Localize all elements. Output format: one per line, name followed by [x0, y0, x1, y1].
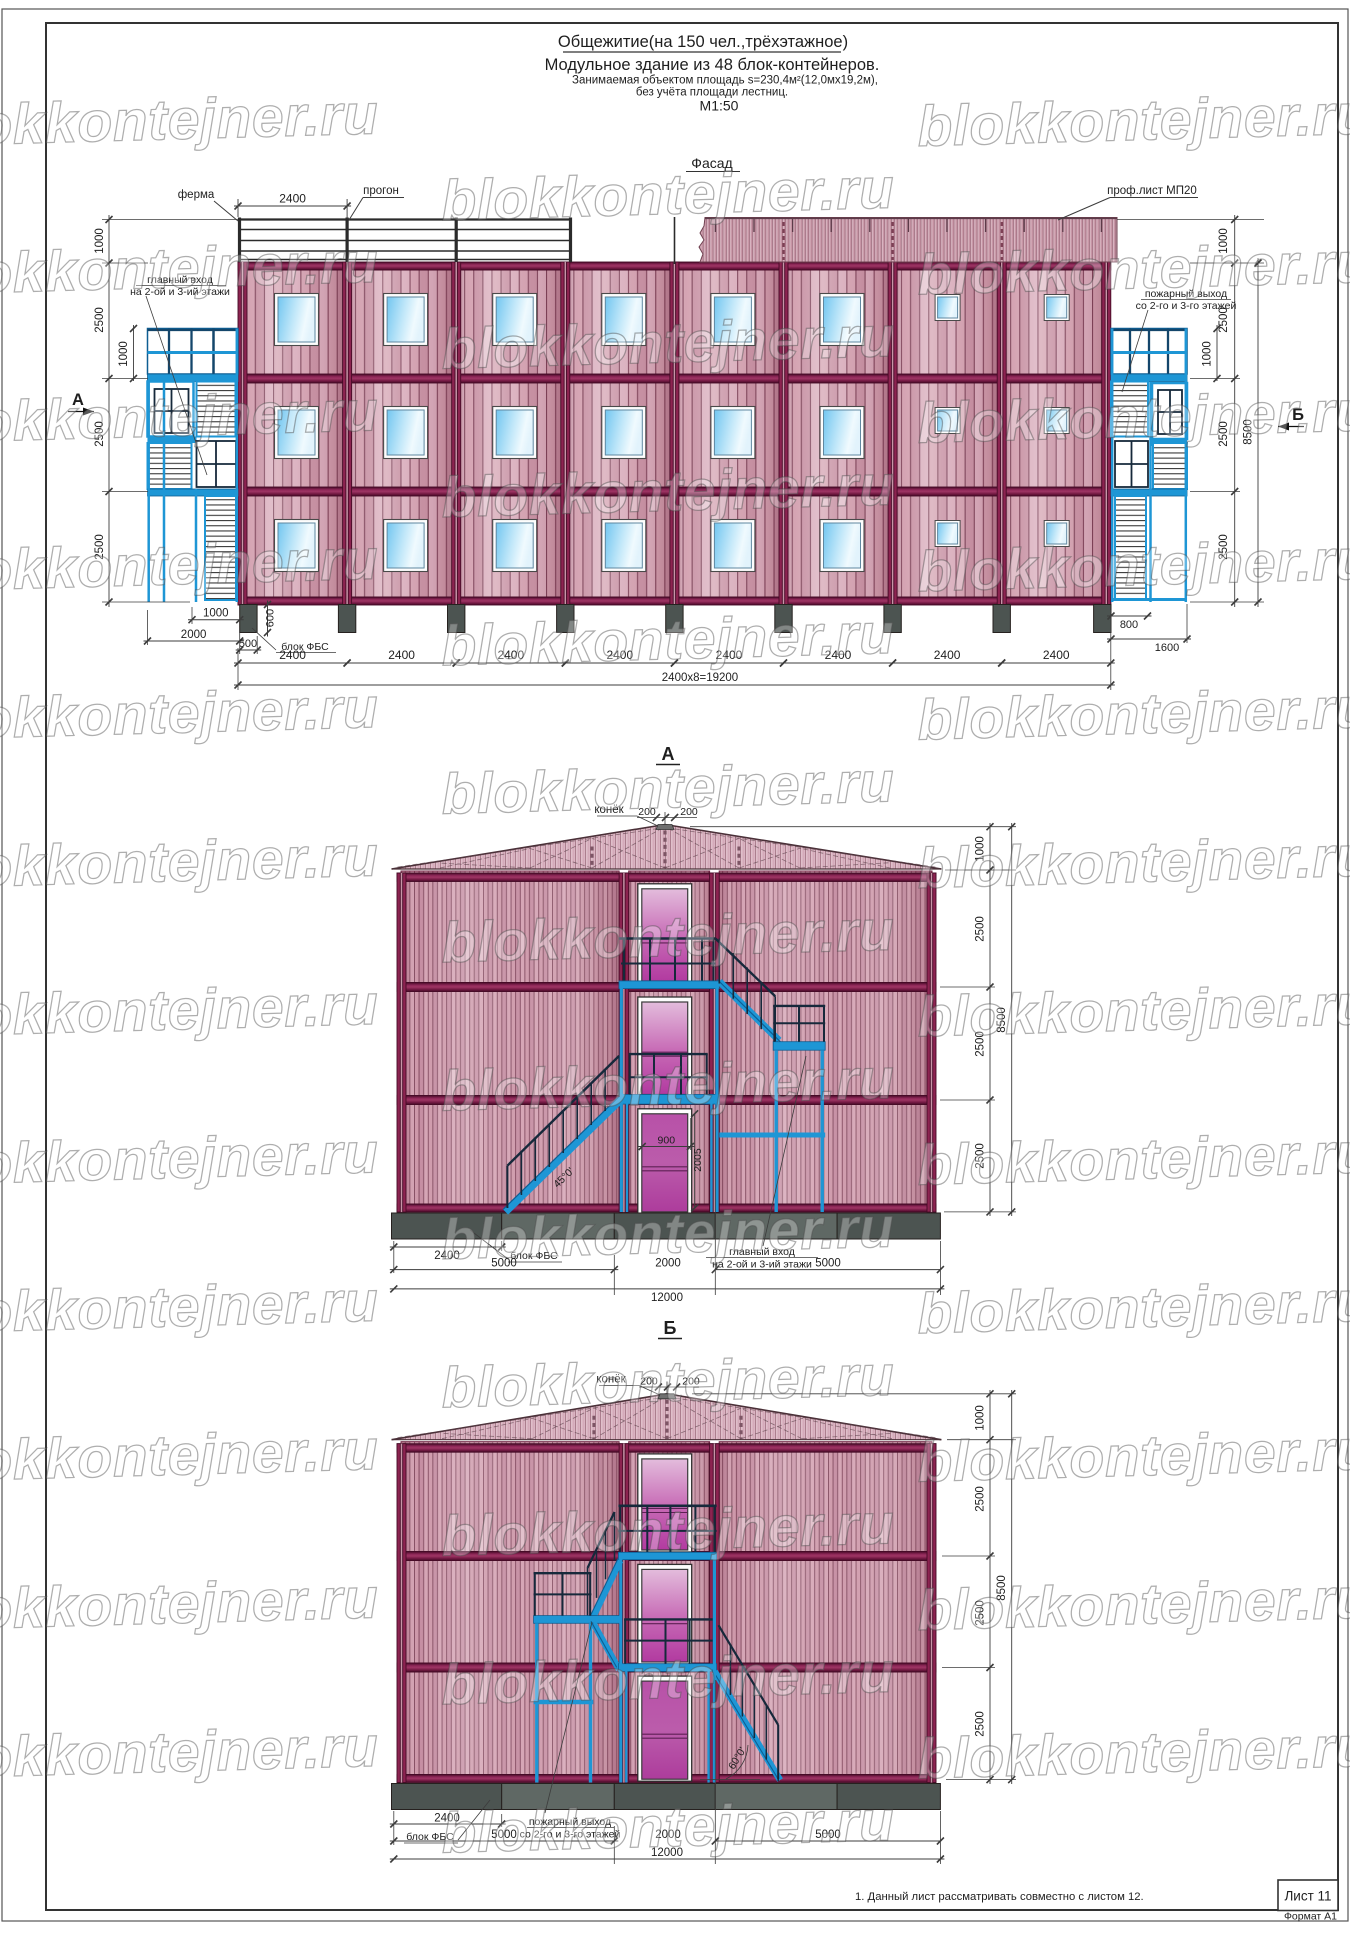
svg-text:1600: 1600: [1155, 642, 1179, 654]
svg-text:blokkontejner.ru: blokkontejner.ru: [0, 824, 379, 901]
svg-text:2400: 2400: [388, 648, 415, 662]
svg-text:blokkontejner.ru: blokkontejner.ru: [917, 1270, 1350, 1347]
svg-text:blokkontejner.ru: blokkontejner.ru: [917, 1121, 1350, 1198]
svg-text:blokkontejner.ru: blokkontejner.ru: [0, 1566, 379, 1643]
svg-text:600: 600: [265, 609, 277, 627]
svg-text:Формат А1: Формат А1: [1284, 1911, 1337, 1923]
svg-text:blokkontejner.ru: blokkontejner.ru: [917, 1715, 1350, 1792]
svg-text:500: 500: [239, 638, 257, 650]
svg-text:800: 800: [1120, 619, 1138, 631]
svg-text:blokkontejner.ru: blokkontejner.ru: [441, 1047, 896, 1124]
svg-text:проф.лист МП20: проф.лист МП20: [1107, 185, 1197, 197]
svg-text:М1:50: М1:50: [700, 98, 739, 114]
svg-text:2400: 2400: [279, 192, 306, 206]
svg-text:blokkontejner.ru: blokkontejner.ru: [0, 973, 379, 1050]
svg-text:1000: 1000: [975, 1405, 987, 1431]
svg-text:blokkontejner.ru: blokkontejner.ru: [0, 379, 379, 456]
svg-text:1000: 1000: [1202, 341, 1214, 367]
svg-text:blokkontejner.ru: blokkontejner.ru: [441, 453, 896, 530]
svg-text:blokkontejner.ru: blokkontejner.ru: [0, 528, 379, 605]
svg-text:Б: Б: [664, 1318, 677, 1338]
svg-text:blokkontejner.ru: blokkontejner.ru: [917, 1566, 1350, 1643]
svg-text:blokkontejner.ru: blokkontejner.ru: [0, 82, 379, 159]
svg-text:blokkontejner.ru: blokkontejner.ru: [917, 379, 1350, 456]
svg-text:blokkontejner.ru: blokkontejner.ru: [917, 973, 1350, 1050]
svg-text:Модульное здание из 48 блок-к: Модульное здание из 48 блок-контейнеров.: [545, 56, 880, 74]
svg-text:blokkontejner.ru: blokkontejner.ru: [917, 528, 1350, 605]
svg-text:blokkontejner.ru: blokkontejner.ru: [0, 1121, 379, 1198]
svg-text:2500: 2500: [975, 916, 987, 942]
svg-text:blokkontejner.ru: blokkontejner.ru: [441, 1195, 896, 1272]
svg-text:2400: 2400: [1043, 648, 1070, 662]
svg-text:blokkontejner.ru: blokkontejner.ru: [441, 305, 896, 382]
svg-text:1000: 1000: [203, 608, 229, 620]
svg-text:blokkontejner.ru: blokkontejner.ru: [441, 1492, 896, 1569]
svg-text:blokkontejner.ru: blokkontejner.ru: [441, 1789, 896, 1866]
svg-text:2005: 2005: [692, 1148, 704, 1172]
svg-text:1000: 1000: [118, 341, 130, 367]
svg-text:прогон: прогон: [363, 185, 399, 197]
svg-text:blokkontejner.ru: blokkontejner.ru: [441, 602, 896, 679]
svg-text:blokkontejner.ru: blokkontejner.ru: [441, 899, 896, 976]
svg-text:blokkontejner.ru: blokkontejner.ru: [917, 231, 1350, 308]
svg-text:2400: 2400: [934, 648, 961, 662]
svg-text:blokkontejner.ru: blokkontejner.ru: [917, 1418, 1350, 1495]
svg-text:2400х8=19200: 2400х8=19200: [662, 672, 738, 684]
svg-text:blokkontejner.ru: blokkontejner.ru: [441, 1641, 896, 1718]
svg-text:1. Данный лист рассматривать с: 1. Данный лист рассматривать совместно с…: [855, 1891, 1144, 1903]
svg-text:blokkontejner.ru: blokkontejner.ru: [441, 1344, 896, 1421]
svg-text:со 2-го и 3-го этажей: со 2-го и 3-го этажей: [1136, 300, 1237, 312]
svg-text:900: 900: [658, 1135, 676, 1147]
svg-text:blokkontejner.ru: blokkontejner.ru: [0, 1715, 379, 1792]
svg-text:Лист 11: Лист 11: [1284, 1889, 1331, 1904]
svg-text:blokkontejner.ru: blokkontejner.ru: [0, 676, 379, 753]
svg-text:blokkontejner.ru: blokkontejner.ru: [917, 82, 1350, 159]
svg-text:blokkontejner.ru: blokkontejner.ru: [917, 676, 1350, 753]
svg-text:Занимаемая объектом площадь: Занимаемая объектом площадь s=230,4м²(12…: [572, 75, 878, 87]
svg-text:2000: 2000: [181, 629, 207, 641]
svg-text:blokkontejner.ru: blokkontejner.ru: [917, 824, 1350, 901]
svg-text:blokkontejner.ru: blokkontejner.ru: [441, 750, 896, 827]
svg-text:2500: 2500: [94, 307, 106, 333]
svg-text:blokkontejner.ru: blokkontejner.ru: [0, 231, 379, 308]
svg-text:blokkontejner.ru: blokkontejner.ru: [0, 1270, 379, 1347]
svg-text:blokkontejner.ru: blokkontejner.ru: [441, 157, 896, 234]
svg-text:blokkontejner.ru: blokkontejner.ru: [0, 1418, 379, 1495]
svg-text:2400: 2400: [279, 648, 306, 662]
svg-text:12000: 12000: [651, 1292, 683, 1304]
svg-text:Общежитие(на 150 чел.,трёхэтаж: Общежитие(на 150 чел.,трёхэтажное): [558, 33, 848, 51]
svg-text:ферма: ферма: [178, 189, 215, 201]
